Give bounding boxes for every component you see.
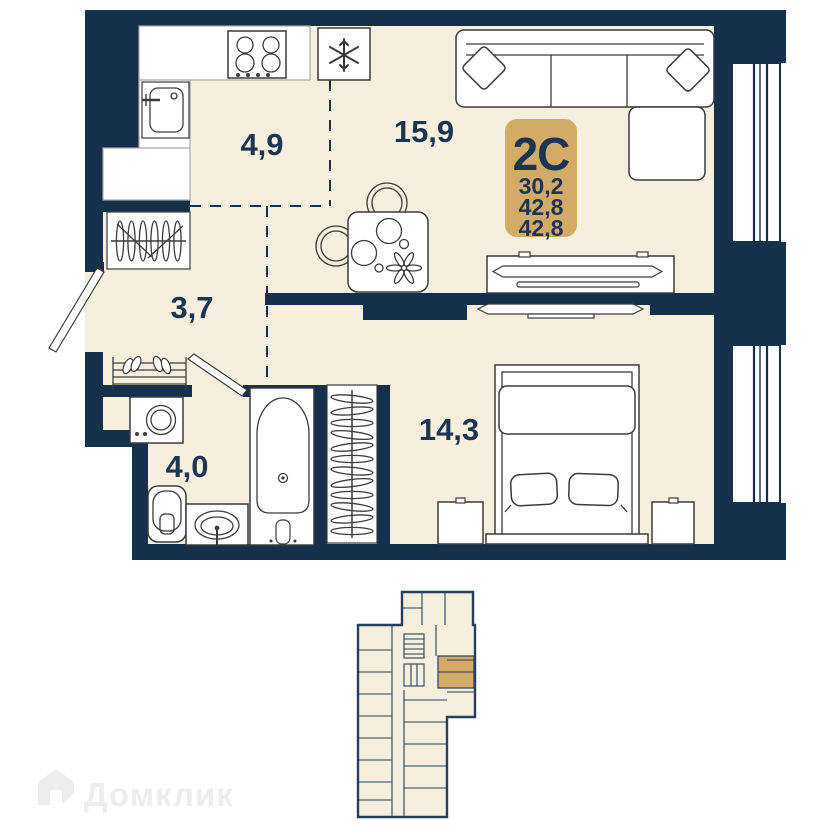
building-mini-plan <box>358 592 475 817</box>
room-area-bedroom: 14,3 <box>419 412 479 447</box>
unit-type-badge: 2С 30,2 42,8 42,8 <box>505 119 577 241</box>
boundary-notch <box>85 447 132 560</box>
stove-icon <box>228 31 286 78</box>
room-area-kitchen: 4,9 <box>240 127 283 162</box>
headboard <box>486 534 648 544</box>
watermark: Домклик <box>38 770 234 813</box>
kitchen-sink-icon <box>142 82 189 138</box>
pillow-icon <box>510 473 558 506</box>
duvet-icon <box>499 386 635 434</box>
nightstand-icon <box>438 498 483 544</box>
fridge-icon <box>318 28 370 80</box>
pillow-icon <box>568 473 618 506</box>
tv-stand-icon <box>487 252 674 293</box>
closet-icon <box>327 385 377 543</box>
washing-machine-icon <box>130 397 183 443</box>
toilet-icon <box>148 486 186 542</box>
nightstand-icon <box>652 498 694 544</box>
window-icon <box>732 345 780 503</box>
apartment-plan: 4,9 15,9 3,7 4,0 14,3 2С 30,2 42,8 42,8 <box>49 10 786 560</box>
floorplan-canvas: 4,9 15,9 3,7 4,0 14,3 2С 30,2 42,8 42,8 <box>0 0 834 834</box>
tv-icon <box>493 266 662 277</box>
watermark-brand-text: Домклик <box>84 776 234 813</box>
bed-icon <box>486 365 648 544</box>
unit-area-3: 42,8 <box>519 215 564 241</box>
wardrobe-icon <box>107 212 190 269</box>
room-area-hallway: 3,7 <box>170 290 213 325</box>
bathtub-icon <box>250 388 314 545</box>
vanity-sink-icon <box>186 504 248 545</box>
floorplan-page: 4,9 15,9 3,7 4,0 14,3 2С 30,2 42,8 42,8 <box>0 0 834 834</box>
room-area-living: 15,9 <box>394 114 454 149</box>
room-area-bathroom: 4,0 <box>165 449 208 484</box>
window-icon <box>732 63 780 242</box>
